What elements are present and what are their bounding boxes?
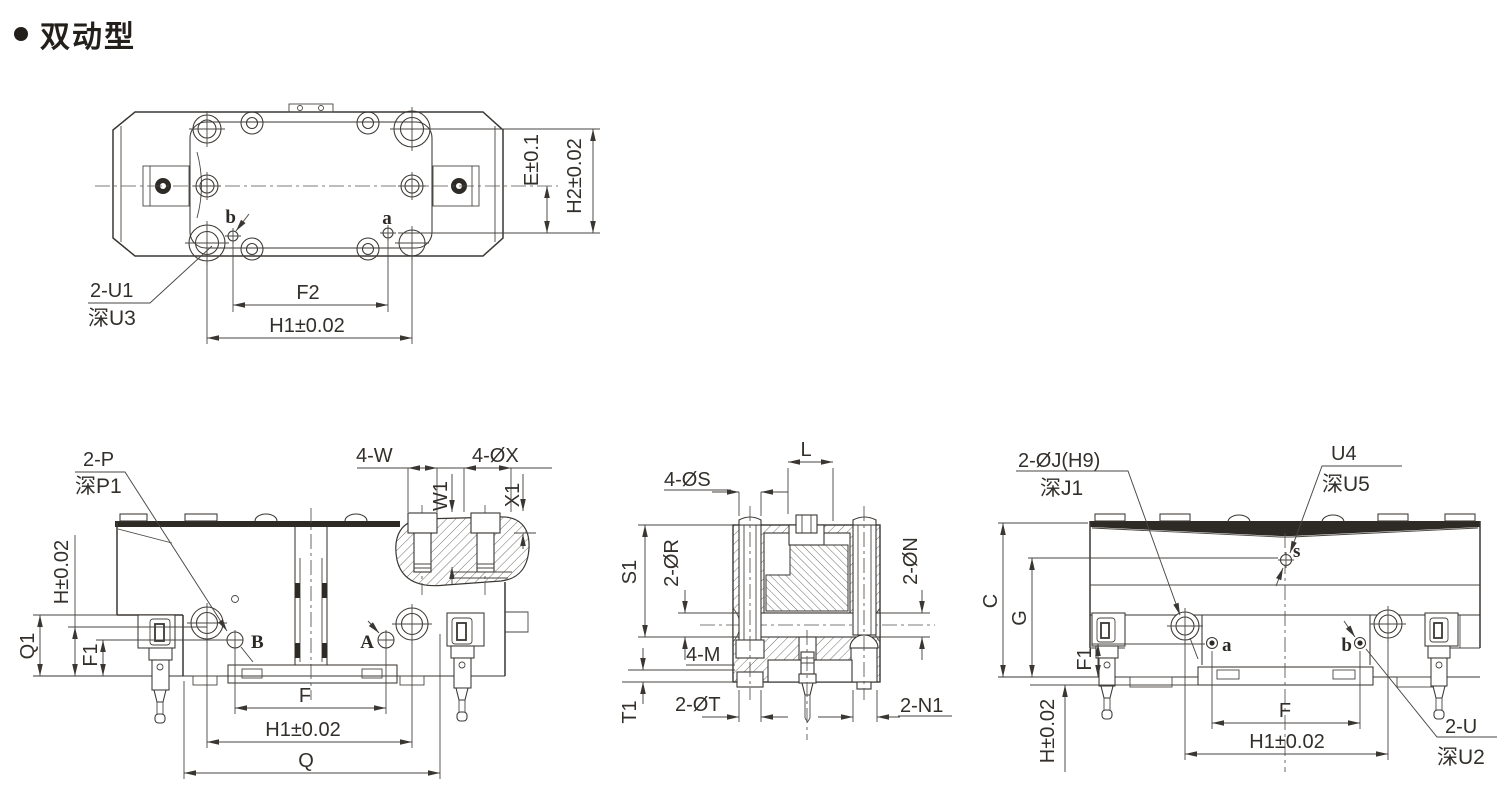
dim-f: F [1279,700,1291,722]
label-2oj: 2-ØJ(H9) [1018,450,1100,472]
drawing-page: 双动型 [0,0,1505,793]
label-deep-u3: 深U3 [88,307,136,330]
dim-t1: T1 [619,700,641,723]
section-view-right-bolt [850,506,878,700]
label-deep-u5: 深U5 [1322,473,1370,496]
technical-drawing: b a E±0.1 H2±0.02 F2 H1±0.02 2-U1 深U3 [0,0,1505,793]
dim-h: H±0.02 [1037,699,1059,763]
label-2p: 2-P [83,449,114,471]
dim-2ot: 2-ØT [675,694,721,716]
dim-l: L [800,439,811,461]
dim-g: G [1009,610,1031,626]
label-u4: U4 [1331,443,1357,465]
dim-s1: S1 [619,560,641,584]
label-deep-p1: 深P1 [75,475,122,498]
dim-4ox: 4-ØX [472,445,519,467]
dim-q1: Q1 [17,633,39,660]
label-deep-u2: 深U2 [1437,746,1485,769]
dim-c: C [980,594,1002,608]
dim-h1: H1±0.02 [265,719,340,741]
dim-f2: F2 [296,282,319,304]
dim-4os: 4-ØS [664,469,711,491]
front-view-position-markers: B A [227,621,394,662]
side-view-sensor-left [1092,613,1125,719]
dim-2n1: 2-N1 [900,695,943,717]
side-view: a b s 2-ØJ(H9) 深J1 U4 深U5 C G [980,443,1497,772]
dim-4w: 4-W [356,445,393,467]
dim-h: H±0.02 [51,540,73,604]
dim-f1: F1 [80,643,102,666]
top-view-dimensions: E±0.1 H2±0.02 F2 H1±0.02 2-U1 深U3 [88,129,600,344]
dim-e: E±0.1 [521,134,543,186]
marker-s: s [1293,541,1300,562]
section-view: L 4-ØS 2-ØR S1 4-M T1 2-ØT [619,439,952,740]
dim-q: Q [298,750,314,772]
top-view: b a E±0.1 H2±0.02 F2 H1±0.02 2-U1 深U3 [88,104,600,344]
dim-h1: H1±0.02 [269,315,344,337]
marker-b: b [1341,635,1352,656]
dim-f1: F1 [1074,647,1096,670]
front-view-pivot-holes [187,603,432,644]
dim-f: F [299,685,311,707]
dim-w1: W1 [430,481,452,511]
marker-a: a [1222,635,1232,656]
side-view-dimensions: 2-ØJ(H9) 深J1 U4 深U5 C G F1 H±0.02 [980,443,1497,772]
dim-2on: 2-ØN [900,537,922,585]
front-view-section-blob [396,505,536,595]
marker-A: A [360,632,374,653]
front-view-sensor-right [447,613,484,721]
front-view: B A 2-P 深P1 4-W 4-ØX W1 [17,445,552,779]
dim-x1: X1 [502,483,524,507]
side-view-body [998,514,1480,772]
front-view-sensor-left [138,615,175,723]
dim-h2: H2±0.02 [564,138,586,213]
side-view-sensor-right [1425,613,1458,719]
label-deep-j1: 深J1 [1040,477,1083,500]
label-2u1: 2-U1 [90,280,133,302]
hole-a-label: a [382,208,392,229]
label-2u: 2-U [1445,716,1477,738]
front-view-dimensions: 2-P 深P1 4-W 4-ØX W1 X1 Q1 H [17,445,552,779]
top-view-hole-markers: b a [225,207,392,231]
dim-h1: H1±0.02 [1249,731,1324,753]
dim-2or: 2-ØR [661,539,683,587]
dim-4m: 4-M [686,644,720,666]
marker-B: B [251,632,264,653]
hole-b-label: b [225,207,236,228]
